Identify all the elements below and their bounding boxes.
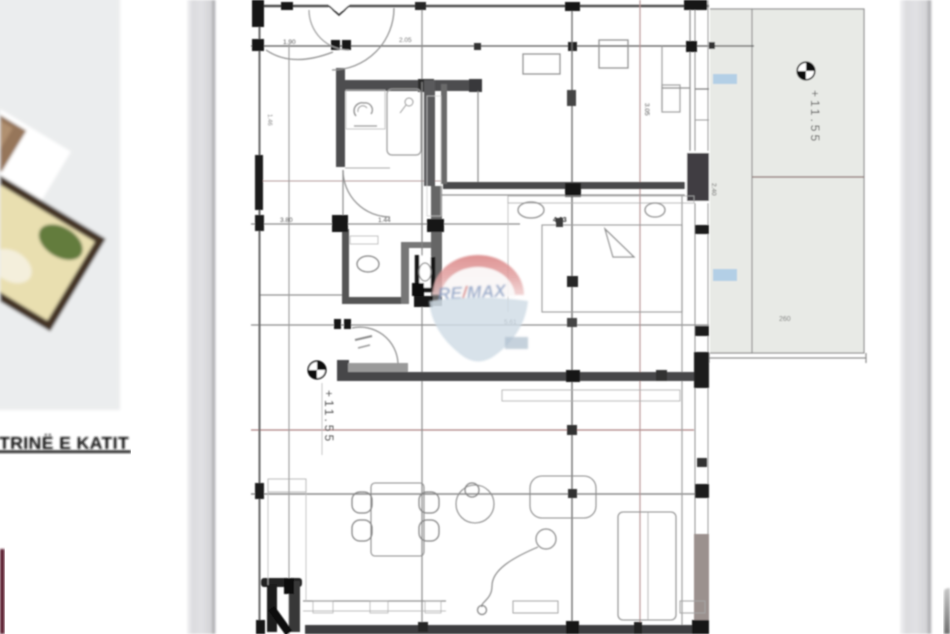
svg-text:1.44: 1.44 (378, 217, 391, 224)
svg-text:2.05: 2.05 (399, 37, 412, 44)
svg-text:+11.55: +11.55 (808, 90, 822, 144)
svg-text:PLANIMETRINË E KATIT: PLANIMETRINË E KATIT (0, 433, 129, 453)
svg-text:1.46: 1.46 (266, 114, 272, 126)
svg-text:3.05: 3.05 (643, 103, 650, 116)
svg-text:2.40: 2.40 (710, 183, 717, 196)
svg-text:+11.55: +11.55 (322, 390, 336, 444)
svg-text:260: 260 (779, 316, 791, 323)
svg-text:1.90: 1.90 (283, 39, 296, 46)
svg-text:3.80: 3.80 (280, 217, 293, 224)
